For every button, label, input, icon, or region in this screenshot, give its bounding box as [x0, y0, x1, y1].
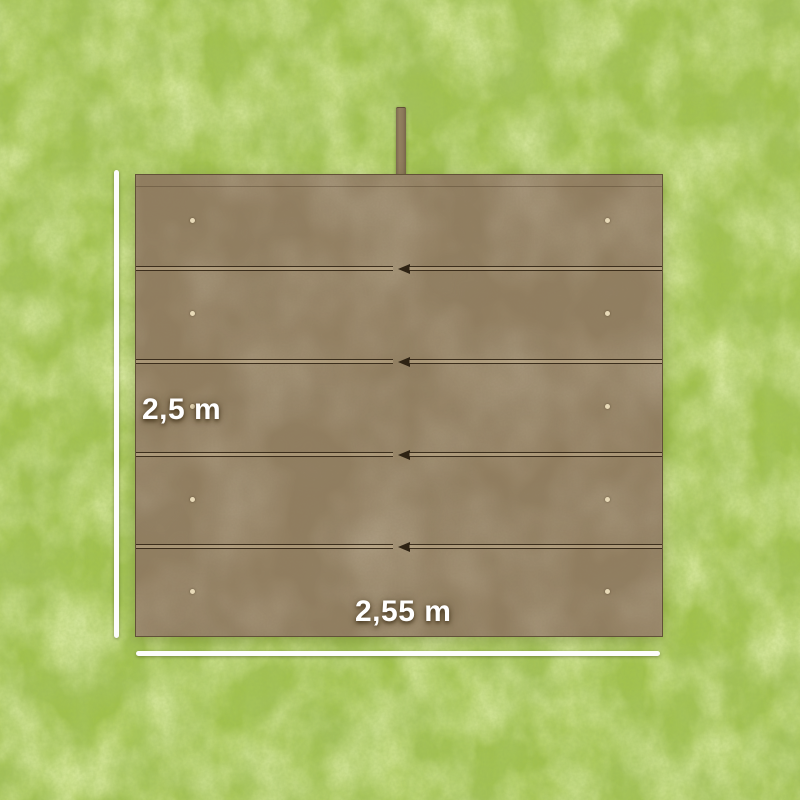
seam-line — [136, 544, 662, 549]
height-dimension-line — [114, 170, 119, 638]
seam-segment — [409, 359, 662, 364]
seam-segment — [136, 359, 393, 364]
eyelet — [190, 311, 195, 316]
tarp-hem-line — [136, 186, 662, 187]
eyelet — [190, 497, 195, 502]
eyelet — [605, 218, 610, 223]
scene: 2,5 m 2,55 m — [0, 0, 800, 800]
seam-segment — [136, 544, 393, 549]
seam-segment — [409, 544, 662, 549]
eyelet — [605, 589, 610, 594]
eyelet — [190, 589, 195, 594]
width-dimension-line — [136, 651, 660, 656]
seam-segment — [409, 452, 662, 457]
width-dimension-label: 2,55 m — [355, 595, 451, 629]
seam-line — [136, 266, 662, 271]
seam-segment — [136, 452, 393, 457]
height-dimension-label: 2,5 m — [142, 393, 221, 427]
eyelet — [605, 497, 610, 502]
seam-line — [136, 359, 662, 364]
eyelet — [605, 404, 610, 409]
eyelet — [605, 311, 610, 316]
seam-segment — [136, 266, 393, 271]
tarp-strap — [396, 107, 406, 180]
seam-segment — [409, 266, 662, 271]
seam-line — [136, 452, 662, 457]
eyelet — [190, 218, 195, 223]
